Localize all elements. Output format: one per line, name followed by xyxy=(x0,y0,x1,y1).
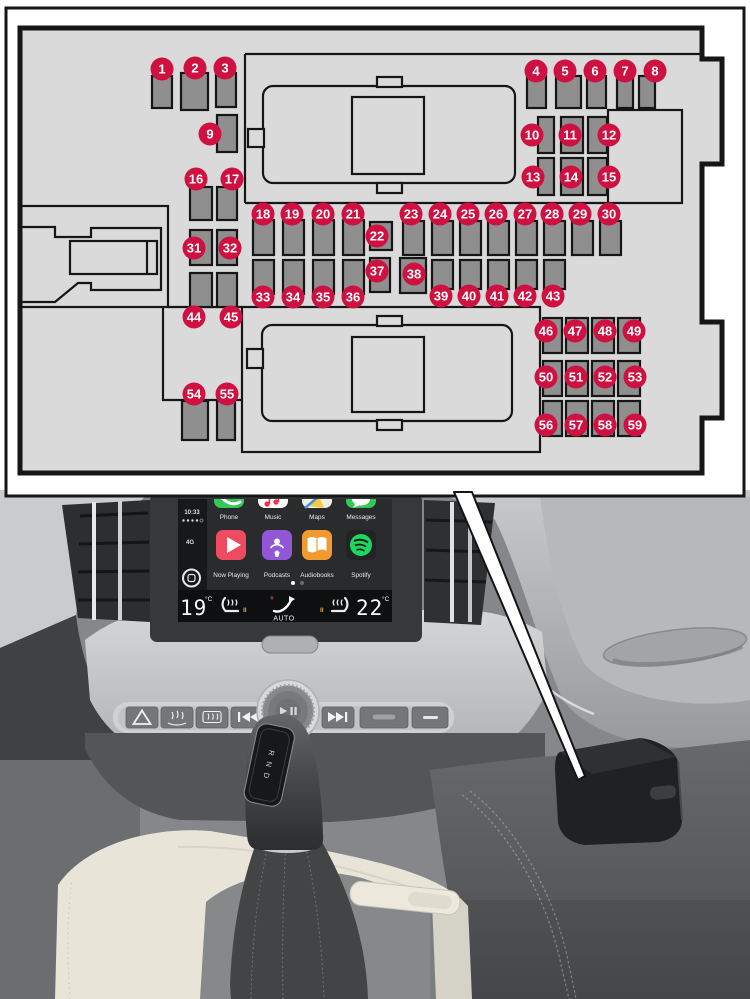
fuse-number: 1 xyxy=(158,62,165,77)
vent-blade[interactable] xyxy=(92,502,96,620)
app-label-audiobooks: Audiobooks xyxy=(300,572,333,579)
fuse-slot xyxy=(217,187,237,220)
fuse-slot xyxy=(516,221,537,255)
fuse-number: 41 xyxy=(490,289,504,304)
fuse-number: 49 xyxy=(627,324,641,339)
right-temp-unit: °C xyxy=(382,595,390,603)
fuse-number: 44 xyxy=(187,310,202,325)
fuse-slot xyxy=(488,221,509,255)
fuse-number: 7 xyxy=(621,64,628,79)
fuse-number: 22 xyxy=(370,229,384,244)
right-seat-heat-level: II xyxy=(320,607,324,614)
dock-label-messages: Messages xyxy=(346,514,375,521)
cd-slot-opening xyxy=(372,714,396,720)
fuse-number: 5 xyxy=(561,64,568,79)
left-seat-heat-level: II xyxy=(243,607,247,614)
fuse-number: 47 xyxy=(568,324,582,339)
app-label-now-playing: Now Playing xyxy=(213,572,249,579)
fuse-number: 54 xyxy=(187,387,202,402)
fuse-number: 34 xyxy=(286,290,301,305)
fuse-slot xyxy=(460,221,481,255)
fuse-number: 10 xyxy=(525,128,539,143)
fuse-number: 4 xyxy=(532,64,540,79)
fuse-number: 55 xyxy=(220,387,234,402)
fuse-number: 58 xyxy=(598,418,612,433)
screen-eject-button[interactable] xyxy=(262,636,318,653)
fuse-slot xyxy=(572,221,593,255)
fuse-slot xyxy=(190,187,212,220)
fuse-number: 39 xyxy=(434,289,448,304)
vent-blade[interactable] xyxy=(450,502,454,622)
fuse-number: 32 xyxy=(223,241,237,256)
fuse-number: 35 xyxy=(316,290,330,305)
fuse-number: 38 xyxy=(407,267,421,282)
vent-blade[interactable] xyxy=(118,501,122,620)
blank-button-mark xyxy=(423,716,438,719)
snowflake-icon: * xyxy=(270,595,274,606)
fuse-number: 3 xyxy=(221,61,228,76)
fuse-number: 13 xyxy=(526,170,540,185)
app-label-podcasts: Podcasts xyxy=(264,572,290,579)
fuse-number: 48 xyxy=(598,324,612,339)
fuse-slot xyxy=(182,401,208,440)
fuse-slot xyxy=(432,221,453,255)
fuse-slot xyxy=(190,273,212,307)
auto-climate-label[interactable]: AUTO xyxy=(273,616,294,623)
fuse-number: 20 xyxy=(316,207,330,222)
fuse-number: 24 xyxy=(433,207,448,222)
fuse-number: 30 xyxy=(602,207,616,222)
fuse-number: 15 xyxy=(602,170,616,185)
fuse-number: 52 xyxy=(598,370,612,385)
fuse-number: 14 xyxy=(564,170,579,185)
fuse-number: 36 xyxy=(346,290,360,305)
fuse-number: 37 xyxy=(370,264,384,279)
fuse-number: 12 xyxy=(602,128,616,143)
fuse-number: 9 xyxy=(206,127,213,142)
app-label-spotify: Spotify xyxy=(351,572,371,579)
fuse-number: 28 xyxy=(545,207,559,222)
rear-defrost-button[interactable] xyxy=(196,707,228,728)
fuse-number: 29 xyxy=(573,207,587,222)
fuse-number: 27 xyxy=(518,207,532,222)
network-badge: 4G xyxy=(186,540,194,546)
fuse-number: 25 xyxy=(461,207,475,222)
app-tile-spotify[interactable] xyxy=(346,530,376,560)
app-tile-audiobooks[interactable] xyxy=(302,530,332,560)
fuse-number: 16 xyxy=(189,172,203,187)
page-dot xyxy=(300,581,304,585)
fuse-diagram: 1234567891011121314151617181920212223242… xyxy=(6,8,744,496)
fuse-number: 6 xyxy=(591,64,598,79)
left-temperature[interactable]: 19 xyxy=(180,596,207,620)
fuse-slot xyxy=(217,401,235,440)
fuse-number: 18 xyxy=(256,207,270,222)
dock-label-music: Music xyxy=(265,514,282,521)
fuse-number: 21 xyxy=(346,207,360,222)
fuse-number: 33 xyxy=(256,290,270,305)
fuse-number: 42 xyxy=(518,289,532,304)
dock-label-phone: Phone xyxy=(220,514,239,521)
fuse-number: 57 xyxy=(569,418,583,433)
fuse-slot xyxy=(217,273,237,307)
fuse-number: 17 xyxy=(225,172,239,187)
fuse-slot xyxy=(152,76,172,108)
fuse-number: 43 xyxy=(546,289,560,304)
fuse-number: 51 xyxy=(569,370,583,385)
fuse-slot xyxy=(544,221,565,255)
fuse-number: 23 xyxy=(404,207,418,222)
app-tile-podcasts[interactable] xyxy=(262,530,292,560)
fuse-number: 31 xyxy=(187,241,201,256)
fuse-number: 19 xyxy=(285,207,299,222)
fuse-number: 26 xyxy=(489,207,503,222)
fuse-number: 11 xyxy=(563,128,577,143)
fuse-number: 45 xyxy=(224,310,238,325)
shadow-overlay xyxy=(430,900,750,999)
fuse-number: 56 xyxy=(539,418,553,433)
fuse-number: 53 xyxy=(628,370,642,385)
status-time: 10:33 xyxy=(184,510,200,516)
fuse-number: 59 xyxy=(628,418,642,433)
interior-photo: 10:33 4G xyxy=(0,480,750,999)
fuse-slot xyxy=(600,221,621,255)
left-temp-unit: °C xyxy=(205,595,213,603)
page-dot-active xyxy=(291,581,295,585)
fuse-number: 46 xyxy=(539,324,553,339)
fuse-number: 2 xyxy=(191,61,198,76)
app-tile-now-playing[interactable] xyxy=(216,530,246,560)
dock-label-maps: Maps xyxy=(309,514,325,521)
manual-page: 10:33 4G xyxy=(0,0,750,999)
fuse-number: 50 xyxy=(539,370,553,385)
fuse-slot xyxy=(403,221,424,255)
fuse-number: 40 xyxy=(462,289,476,304)
right-temperature[interactable]: 22 xyxy=(356,596,383,620)
fuse-number: 8 xyxy=(651,64,658,79)
